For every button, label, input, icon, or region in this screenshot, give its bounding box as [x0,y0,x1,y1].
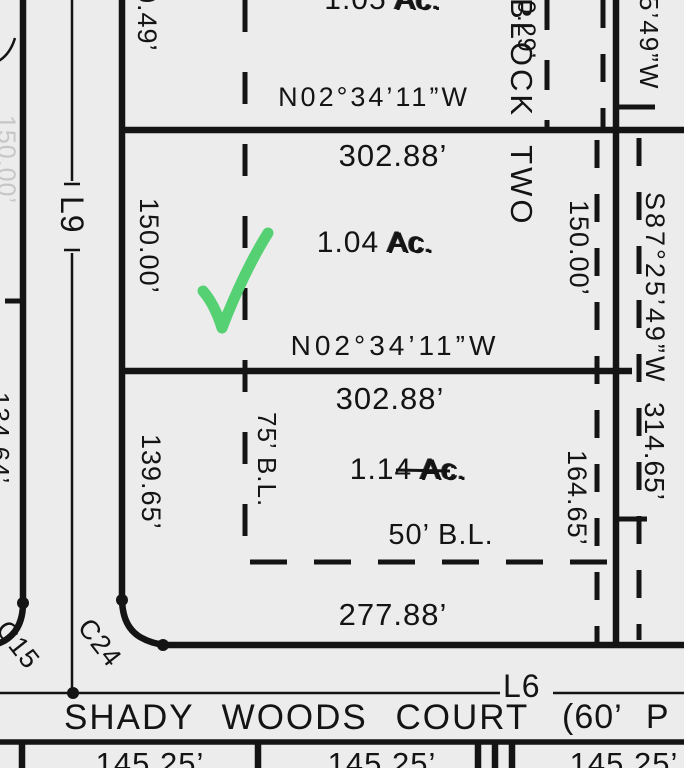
rear-dimension-label: 277.88’ [308,599,478,630]
block-label: BLOCK TWO [506,0,537,226]
bearing-label-east: S87°25’49”W [641,192,668,384]
street-row-note: (60’ P [562,700,670,734]
area-value: 1.04 [317,226,379,259]
dimension-label-west-middle: 150.00’ [135,198,162,294]
lot-area-label-middle: 1.04 Ac. [295,228,455,258]
building-line-75-label: 75’ B.L. [254,412,280,507]
area-unit: Ac. [387,226,433,259]
distance-label-east: 314.65’ [640,402,668,501]
frontage-label-middle: 302.88’ [308,140,478,171]
south-lot-frontage: 145.25’ [70,748,230,768]
corner-curve-fragment [0,38,15,62]
edge-partial-dimension-label: 134.64’ [0,392,13,484]
lot-area-label-bottom: 1.14 Ac. [328,455,488,485]
area-unit: Ac. [394,0,440,16]
lot-area-label-top: 1.05 Ac. [300,0,465,15]
bearing-label-top: N02°34’11”W [268,84,480,111]
dimension-label-east-middle: 150.00’ [565,200,592,296]
south-lot-frontage: 145.25’ [544,748,684,768]
plat-map: 1.05 Ac. N02°34’11”W 0.49’ 0.29’ BLOCK T… [0,0,684,768]
dimension-label-east-bottom: 164.65’ [563,450,590,546]
dimension-label-west-bottom: 139.65’ [137,434,164,530]
line-label-l9: L9 [56,196,88,234]
bearing-label-middle: N02°34’11”W [275,332,515,360]
area-unit: Ac. [420,453,466,486]
bearing-label-east-partial: 5’49”W [636,0,662,90]
checkmark-annotation [203,233,268,328]
building-line-50-label: 50’ B.L. [356,521,526,550]
dimension-label-west-top: 0.49’ [133,0,160,52]
frontage-label-bottom: 302.88’ [305,383,475,414]
south-lot-frontage: 145.25’ [302,748,462,768]
street-row-west-line [0,0,23,646]
area-value: 1.05 [324,0,386,16]
faint-dimension-label: 150.00’ [0,115,18,204]
street-name-label: SHADY WOODS COURT [64,700,494,735]
